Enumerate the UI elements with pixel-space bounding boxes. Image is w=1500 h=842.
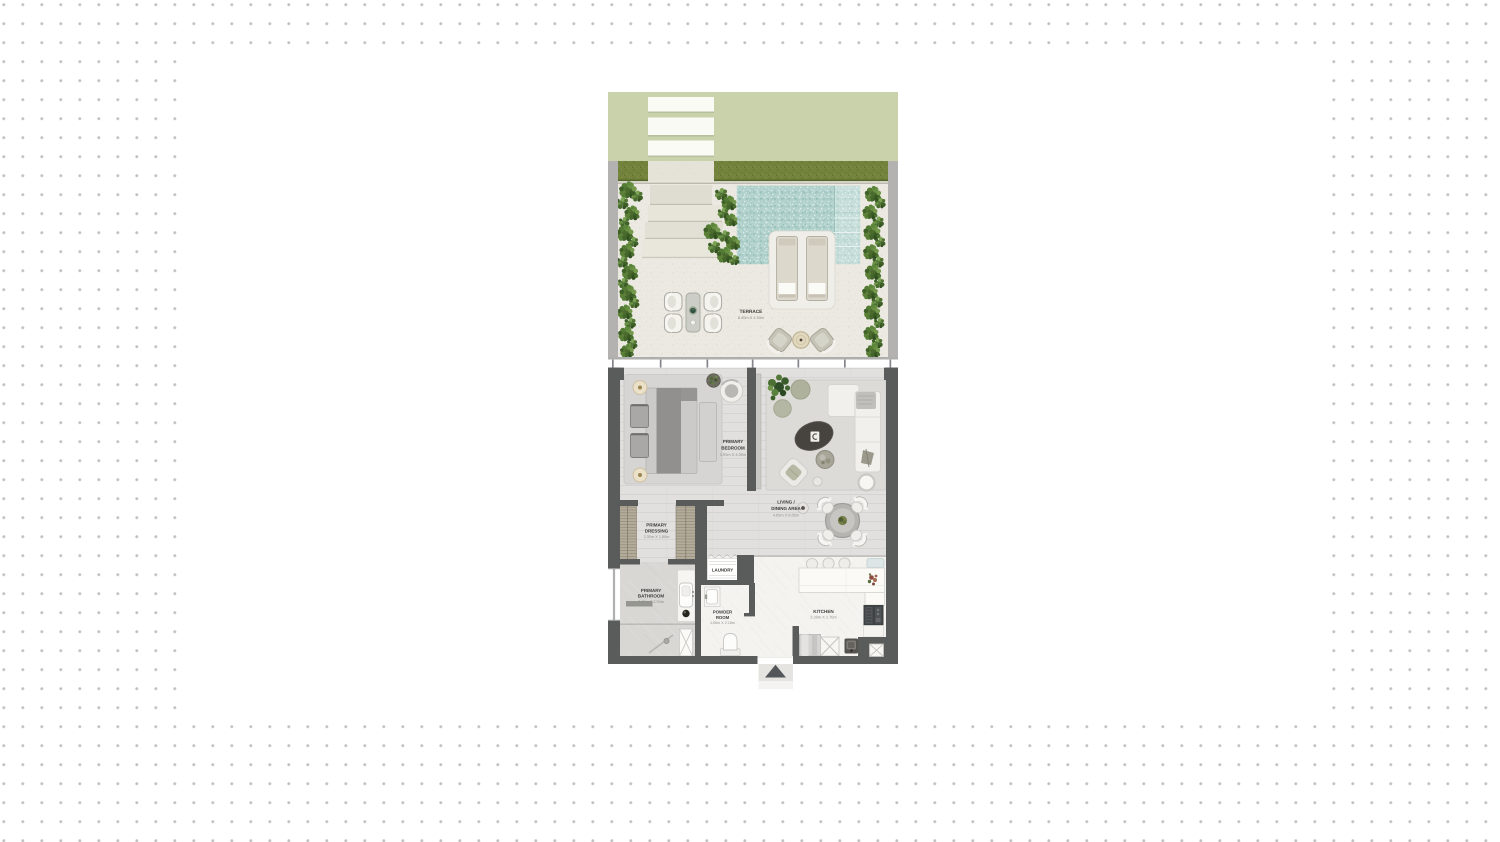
svg-text:PRIMARY: PRIMARY (641, 588, 662, 593)
svg-text:DINING AREA: DINING AREA (771, 506, 801, 511)
svg-text:3.55m X 4.05m: 3.55m X 4.05m (720, 452, 746, 457)
svg-text:LIVING /: LIVING / (777, 500, 795, 505)
svg-text:BATHROOM: BATHROOM (638, 594, 664, 599)
svg-text:2.45m X 2.50m: 2.45m X 2.50m (638, 600, 664, 604)
svg-text:1.60m X 2.10m: 1.60m X 2.10m (710, 621, 735, 625)
svg-text:BEDROOM: BEDROOM (721, 446, 745, 451)
svg-text:ROOM: ROOM (716, 615, 730, 620)
svg-text:PRIMARY: PRIMARY (723, 439, 744, 444)
svg-text:TERRACE: TERRACE (740, 309, 763, 314)
svg-text:PRIMARY: PRIMARY (646, 523, 667, 528)
svg-text:3.30m X 2.70m: 3.30m X 2.70m (810, 615, 836, 620)
svg-text:LAUNDRY: LAUNDRY (712, 567, 733, 572)
svg-text:2.35m X 1.80m: 2.35m X 1.80m (644, 535, 670, 539)
svg-text:4.05m X 6.05m: 4.05m X 6.05m (773, 513, 799, 518)
svg-text:8.40m X 4.50m: 8.40m X 4.50m (738, 315, 764, 320)
svg-text:KITCHEN: KITCHEN (813, 609, 834, 614)
svg-text:DRESSING: DRESSING (645, 528, 669, 533)
